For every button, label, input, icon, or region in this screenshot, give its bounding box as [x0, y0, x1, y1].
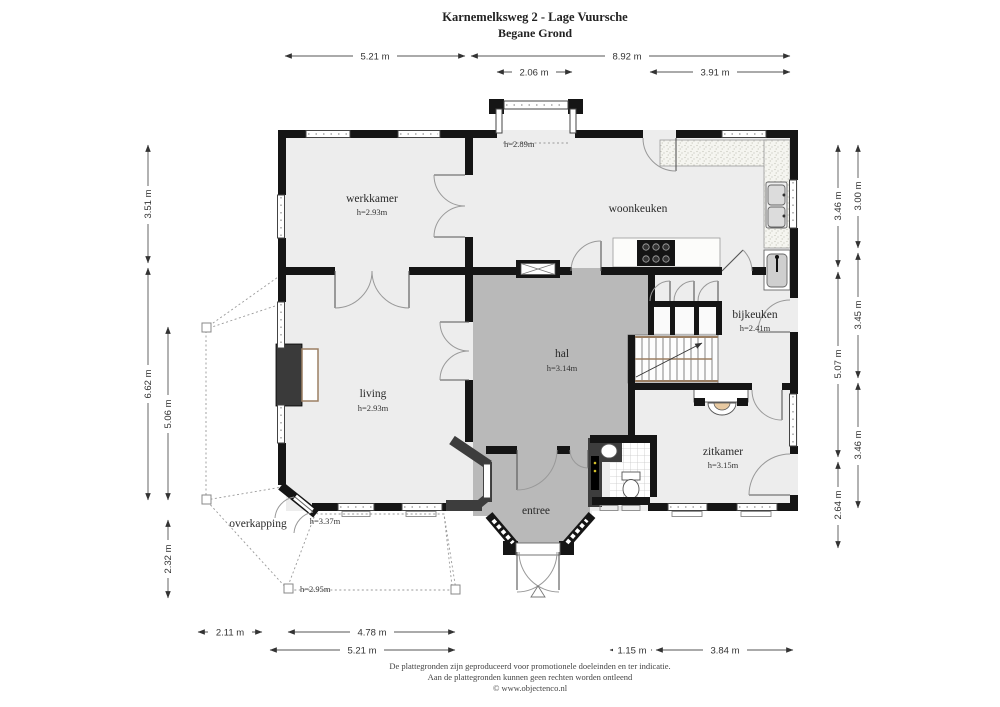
kitchen-sink — [766, 182, 787, 228]
fireplace-living — [276, 344, 318, 406]
toilet — [622, 472, 640, 499]
svg-text:5.07 m: 5.07 m — [833, 349, 844, 378]
svg-text:3.45 m: 3.45 m — [853, 300, 864, 329]
dim-bottom-1: 2.11 m — [198, 626, 262, 639]
porch-height-label: h=2.95m — [300, 584, 331, 594]
dim-top-2: 8.92 m — [471, 50, 790, 63]
wash-basin — [601, 444, 617, 458]
room-height-living: h=2.93m — [358, 403, 389, 413]
dim-top-1: 5.21 m — [285, 50, 465, 63]
dim-bottom-2: 4.78 m — [288, 626, 455, 639]
svg-text:5.06 m: 5.06 m — [163, 399, 174, 428]
floorplan-page: Karnemelksweg 2 - Lage Vuursche Begane G… — [0, 0, 1000, 707]
svg-text:2.11 m: 2.11 m — [216, 628, 244, 639]
dim-bottom-4: 1.15 m — [610, 644, 652, 657]
dim-left-1: 3.51 m — [142, 145, 154, 263]
room-label-woonkeuken: woonkeuken — [609, 203, 668, 215]
svg-text:5.21 m: 5.21 m — [347, 646, 376, 657]
dim-left-3: 5.06 m — [162, 327, 174, 500]
room-label-overkapping: overkapping — [229, 518, 287, 530]
svg-text:1.15 m: 1.15 m — [617, 646, 646, 657]
room-label-zitkamer: zitkamer — [703, 446, 743, 458]
staircase — [628, 335, 718, 383]
svg-text:3.84 m: 3.84 m — [710, 646, 739, 657]
room-label-hal: hal — [555, 348, 569, 360]
room-label-living: living — [360, 388, 387, 400]
hall-closets — [654, 307, 716, 333]
entrance-double-door — [516, 543, 560, 597]
pass-through-hatch — [516, 260, 560, 278]
svg-text:2.06 m: 2.06 m — [519, 68, 548, 79]
room-label-entree: entree — [522, 505, 550, 517]
svg-text:3.46 m: 3.46 m — [833, 191, 844, 220]
svg-text:3.51 m: 3.51 m — [143, 189, 154, 218]
svg-text:2.64 m: 2.64 m — [833, 490, 844, 519]
dim-right-1: 3.46 m — [832, 145, 844, 267]
dim-right-6: 3.46 m — [852, 383, 864, 508]
room-label-werkkamer: werkkamer — [346, 193, 398, 205]
bay-height-label: h=2.89m — [504, 139, 535, 149]
svg-text:3.91 m: 3.91 m — [700, 68, 729, 79]
dim-left-2: 6.62 m — [142, 268, 154, 500]
porch-door-height-label: h=3.37m — [310, 516, 341, 526]
dim-top-3: 2.06 m — [497, 66, 572, 79]
dim-right-3: 2.64 m — [832, 462, 844, 548]
svg-text:3.46 m: 3.46 m — [853, 430, 864, 459]
svg-text:3.00 m: 3.00 m — [853, 181, 864, 210]
dim-top-4: 3.91 m — [650, 66, 790, 79]
svg-text:5.21 m: 5.21 m — [360, 52, 389, 63]
room-height-bijkeuken: h=2.41m — [740, 323, 771, 333]
dim-right-5: 3.45 m — [852, 253, 864, 378]
dim-left-4: 2.32 m — [162, 520, 174, 598]
dim-bottom-5: 3.84 m — [656, 644, 793, 657]
svg-text:6.62 m: 6.62 m — [143, 369, 154, 398]
utility-sink — [764, 250, 790, 290]
room-height-hal: h=3.14m — [547, 363, 578, 373]
footer-copyright: © www.objectenco.nl — [60, 683, 1000, 694]
radiator — [591, 456, 599, 490]
floor-plan-svg: werkkamer h=2.93m woonkeuken bijkeuken h… — [0, 0, 1000, 707]
room-height-zitkamer: h=3.15m — [708, 460, 739, 470]
dim-right-2: 5.07 m — [832, 272, 844, 457]
svg-text:2.32 m: 2.32 m — [163, 544, 174, 573]
svg-text:8.92 m: 8.92 m — [612, 52, 641, 63]
footer-line-2: Aan de plattegronden kunnen geen rechten… — [60, 672, 1000, 683]
room-height-werkkamer: h=2.93m — [357, 207, 388, 217]
dim-bottom-3: 5.21 m — [270, 644, 455, 657]
footer: De plattegronden zijn geproduceerd voor … — [60, 661, 1000, 694]
svg-text:4.78 m: 4.78 m — [357, 628, 386, 639]
dim-right-4: 3.00 m — [852, 145, 864, 248]
footer-line-1: De plattegronden zijn geproduceerd voor … — [60, 661, 1000, 672]
room-label-bijkeuken: bijkeuken — [732, 309, 778, 321]
cooktop-counter — [613, 238, 720, 267]
